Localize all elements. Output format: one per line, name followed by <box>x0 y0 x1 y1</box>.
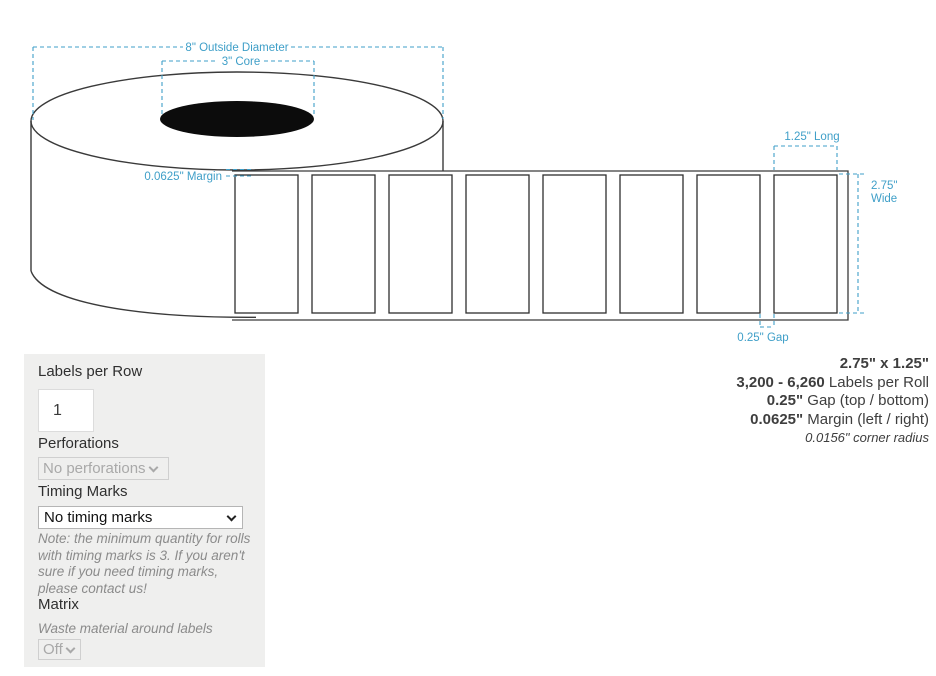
spec-margin: 0.0625" Margin (left / right) <box>736 411 929 430</box>
perforations-select[interactable]: No perforations <box>38 457 169 480</box>
labels-per-row-input[interactable] <box>38 389 94 432</box>
label-rect <box>543 175 606 313</box>
roll-diagram: 8" Outside Diameter 3" Core 0.0625" Marg… <box>0 0 936 350</box>
label-rect <box>466 175 529 313</box>
chevron-down-icon <box>227 511 237 521</box>
roll-core-hole <box>160 101 314 137</box>
matrix-select[interactable]: Off <box>38 639 81 660</box>
wide-label-word: Wide <box>871 193 897 205</box>
label-rect <box>697 175 760 313</box>
label-rect <box>620 175 683 313</box>
options-panel: Labels per Row Perforations No perforati… <box>24 354 265 667</box>
matrix-label: Matrix <box>38 596 79 613</box>
perforations-selected-value: No perforations <box>43 460 146 477</box>
spec-summary: 2.75" x 1.25" 3,200 - 6,260 Labels per R… <box>736 355 929 448</box>
margin-label: 0.0625" Margin <box>144 171 222 183</box>
label-rect <box>312 175 375 313</box>
chevron-down-icon <box>148 462 158 472</box>
timing-marks-note: Note: the minimum quantity for rolls wit… <box>38 531 252 597</box>
core-label: 3" Core <box>222 56 261 68</box>
label-rect <box>235 175 298 313</box>
outside-diameter-label: 8" Outside Diameter <box>185 42 288 54</box>
timing-marks-selected-value: No timing marks <box>44 509 152 526</box>
wide-label-value: 2.75" <box>871 180 897 192</box>
chevron-down-icon <box>65 643 75 653</box>
gap-label: 0.25" Gap <box>737 332 788 344</box>
spec-corner-radius: 0.0156" corner radius <box>736 429 929 448</box>
spec-size: 2.75" x 1.25" <box>736 355 929 374</box>
roll-bottom-curve <box>31 271 256 317</box>
labels-per-row-label: Labels per Row <box>38 363 142 380</box>
long-label: 1.25" Long <box>784 131 839 143</box>
spec-gap: 0.25" Gap (top / bottom) <box>736 392 929 411</box>
perforations-label: Perforations <box>38 435 119 452</box>
matrix-description: Waste material around labels <box>38 621 213 636</box>
label-rect <box>389 175 452 313</box>
spec-labels-per-roll: 3,200 - 6,260 Labels per Roll <box>736 374 929 393</box>
timing-marks-select[interactable]: No timing marks <box>38 506 243 529</box>
matrix-selected-value: Off <box>43 641 63 658</box>
timing-marks-label: Timing Marks <box>38 483 127 500</box>
label-rect <box>774 175 837 313</box>
label-roll-configurator: 8" Outside Diameter 3" Core 0.0625" Marg… <box>0 0 936 676</box>
